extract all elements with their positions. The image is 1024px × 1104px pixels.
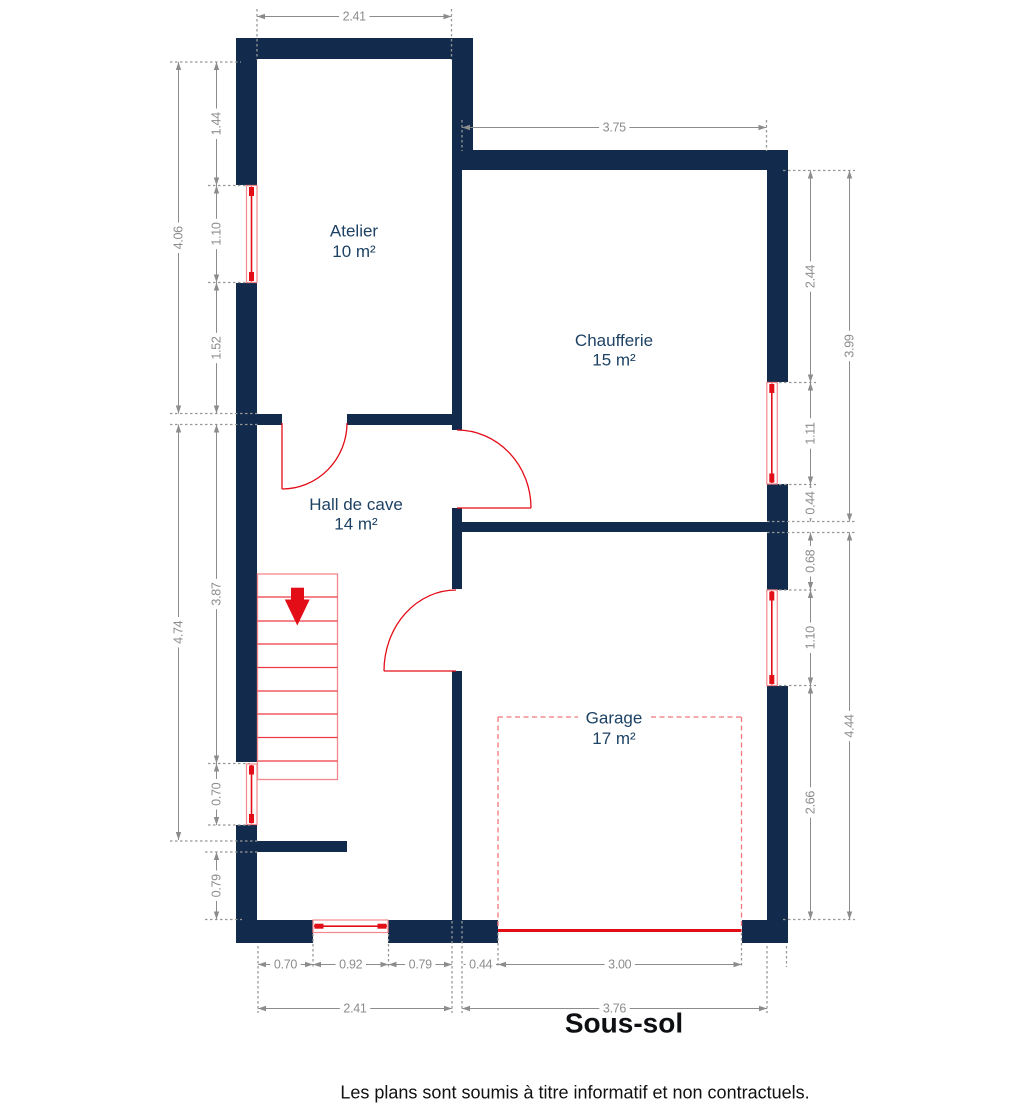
svg-text:1.52: 1.52 [210, 336, 224, 359]
svg-text:0.70: 0.70 [210, 782, 224, 805]
svg-text:3.87: 3.87 [210, 582, 224, 605]
svg-text:3.00: 3.00 [608, 958, 631, 972]
svg-text:0.44: 0.44 [469, 958, 492, 972]
svg-text:0.68: 0.68 [804, 549, 818, 572]
svg-text:2.44: 2.44 [804, 265, 818, 288]
svg-text:14 m²: 14 m² [334, 515, 378, 534]
svg-text:3.75: 3.75 [603, 121, 626, 135]
svg-text:Les plans sont soumis à titre: Les plans sont soumis à titre informatif… [340, 1083, 809, 1103]
svg-text:Chaufferie: Chaufferie [575, 331, 653, 350]
svg-text:10 m²: 10 m² [332, 242, 376, 261]
svg-text:2.66: 2.66 [804, 791, 818, 814]
svg-text:Garage: Garage [586, 709, 643, 728]
svg-text:17 m²: 17 m² [592, 729, 636, 748]
svg-text:2.41: 2.41 [343, 10, 366, 24]
svg-text:4.74: 4.74 [172, 620, 186, 643]
svg-text:15 m²: 15 m² [592, 351, 636, 370]
svg-text:0.44: 0.44 [804, 491, 818, 514]
svg-text:1.11: 1.11 [804, 422, 818, 445]
svg-text:0.79: 0.79 [210, 874, 224, 897]
svg-text:Hall de cave: Hall de cave [309, 495, 403, 514]
svg-text:Atelier: Atelier [330, 222, 379, 241]
svg-text:1.10: 1.10 [804, 626, 818, 649]
svg-text:1.10: 1.10 [210, 222, 224, 245]
svg-text:0.92: 0.92 [339, 958, 362, 972]
svg-text:4.44: 4.44 [843, 714, 857, 737]
svg-text:Sous-sol: Sous-sol [565, 1008, 683, 1039]
svg-text:1.44: 1.44 [210, 112, 224, 135]
svg-text:2.41: 2.41 [343, 1002, 366, 1016]
svg-text:4.06: 4.06 [172, 226, 186, 249]
svg-text:3.99: 3.99 [843, 334, 857, 357]
svg-text:0.70: 0.70 [274, 958, 297, 972]
svg-text:0.79: 0.79 [409, 958, 432, 972]
